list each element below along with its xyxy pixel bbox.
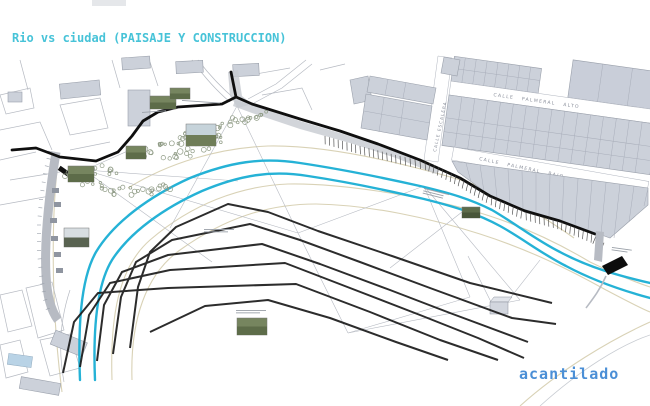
photo-thumbnail-detail [64, 238, 89, 248]
tree-symbol [207, 147, 211, 151]
tree-symbol [221, 122, 224, 125]
hatch-stroke [364, 147, 365, 155]
hatch-stroke [495, 199, 496, 207]
tree-symbol [129, 192, 134, 197]
road-tick [45, 166, 49, 167]
road-tick [47, 158, 51, 159]
road-tick [42, 182, 46, 183]
sight-line [85, 170, 298, 233]
micro-annotation-line [612, 249, 628, 252]
hatch-stroke [466, 183, 468, 191]
drawing-title: Rio vs ciudad (PAISAJE Y CONSTRUCCION) [12, 31, 287, 45]
photo-thumbnail-detail [68, 174, 94, 182]
tree-symbol [255, 116, 258, 119]
hatch-stroke [587, 233, 588, 241]
hatch-stroke [482, 192, 484, 200]
hatch-stroke [500, 201, 501, 209]
hatch-stroke [504, 203, 505, 211]
tree-symbol [188, 154, 192, 158]
tree-symbol [112, 193, 116, 197]
hatch-stroke [478, 190, 480, 198]
micro-annotation-line [204, 231, 228, 232]
tree-symbol [80, 183, 84, 187]
tree-symbol [177, 149, 183, 155]
contour-line [63, 284, 498, 373]
photo-thumbnail-detail [150, 103, 176, 110]
trees [63, 110, 268, 197]
micro-annotation-line [182, 100, 220, 104]
tree-symbol [168, 157, 172, 161]
tree-symbol [156, 186, 161, 191]
tree-symbol [179, 141, 184, 146]
hatch-stroke [578, 229, 579, 237]
photo-thumbnail-detail [126, 153, 146, 160]
hatch-stroke [491, 197, 492, 205]
tree-symbol [228, 123, 233, 128]
tree-symbol [219, 141, 222, 144]
micro-annotation [182, 100, 220, 104]
pond [7, 353, 32, 367]
micro-annotation [612, 247, 632, 253]
hatch-stroke [591, 234, 592, 242]
acantilado-label: acantilado [519, 365, 619, 383]
micro-annotation [236, 310, 266, 313]
photo-thumbnail-detail [462, 213, 480, 219]
sight-line [298, 186, 424, 233]
tree-symbol [229, 120, 233, 124]
road-tick [40, 190, 44, 191]
tree-symbol [121, 185, 125, 189]
hatch-stroke [369, 148, 370, 156]
micro-annotation-line [204, 229, 234, 230]
hatch-stroke [521, 210, 522, 218]
tree-symbol [92, 183, 95, 186]
hatch-stroke [570, 226, 571, 234]
photo-thumbnail-detail [170, 94, 190, 100]
micro-annotation-line [236, 310, 266, 311]
tree-symbol [161, 156, 165, 160]
hatch-stroke [474, 188, 476, 196]
tree-symbol [185, 146, 190, 151]
map-edge-fragment [92, 0, 126, 6]
photo-thumbnail-detail [237, 327, 267, 336]
hatch-stroke [512, 206, 513, 214]
tree-symbol [185, 151, 189, 155]
tree-symbol [201, 147, 206, 152]
hatch-stroke [470, 185, 472, 193]
tree-symbol [191, 149, 194, 152]
tree-symbol [178, 136, 182, 140]
tree-symbol [150, 193, 153, 196]
tree-symbol [108, 173, 111, 176]
hatch-stroke [517, 208, 518, 216]
site-plan-map: CALLE PALMERAL ALTO CALLE PALMERAL BAJO … [0, 0, 650, 406]
hatch-stroke [508, 205, 509, 213]
cliff-contour-lines [63, 204, 556, 373]
road-tick [43, 174, 47, 175]
hatch-stroke [360, 146, 361, 154]
tree-symbol [164, 143, 166, 145]
ramp [594, 231, 604, 262]
tree-symbol [100, 164, 104, 168]
tree-symbol [148, 150, 153, 155]
hatch-stroke [574, 227, 575, 235]
hatch-stroke [583, 231, 584, 239]
tree-symbol [141, 187, 146, 192]
hatch-stroke [566, 224, 567, 232]
contour-line [97, 244, 528, 361]
contour-line [113, 224, 556, 354]
hatch-stroke [462, 180, 464, 188]
micro-annotation-line [236, 312, 260, 313]
drawing-canvas: CALLE PALMERAL ALTO CALLE PALMERAL BAJO … [0, 0, 650, 406]
tree-symbol [169, 141, 174, 146]
photo-thumbnail-detail [186, 135, 216, 146]
